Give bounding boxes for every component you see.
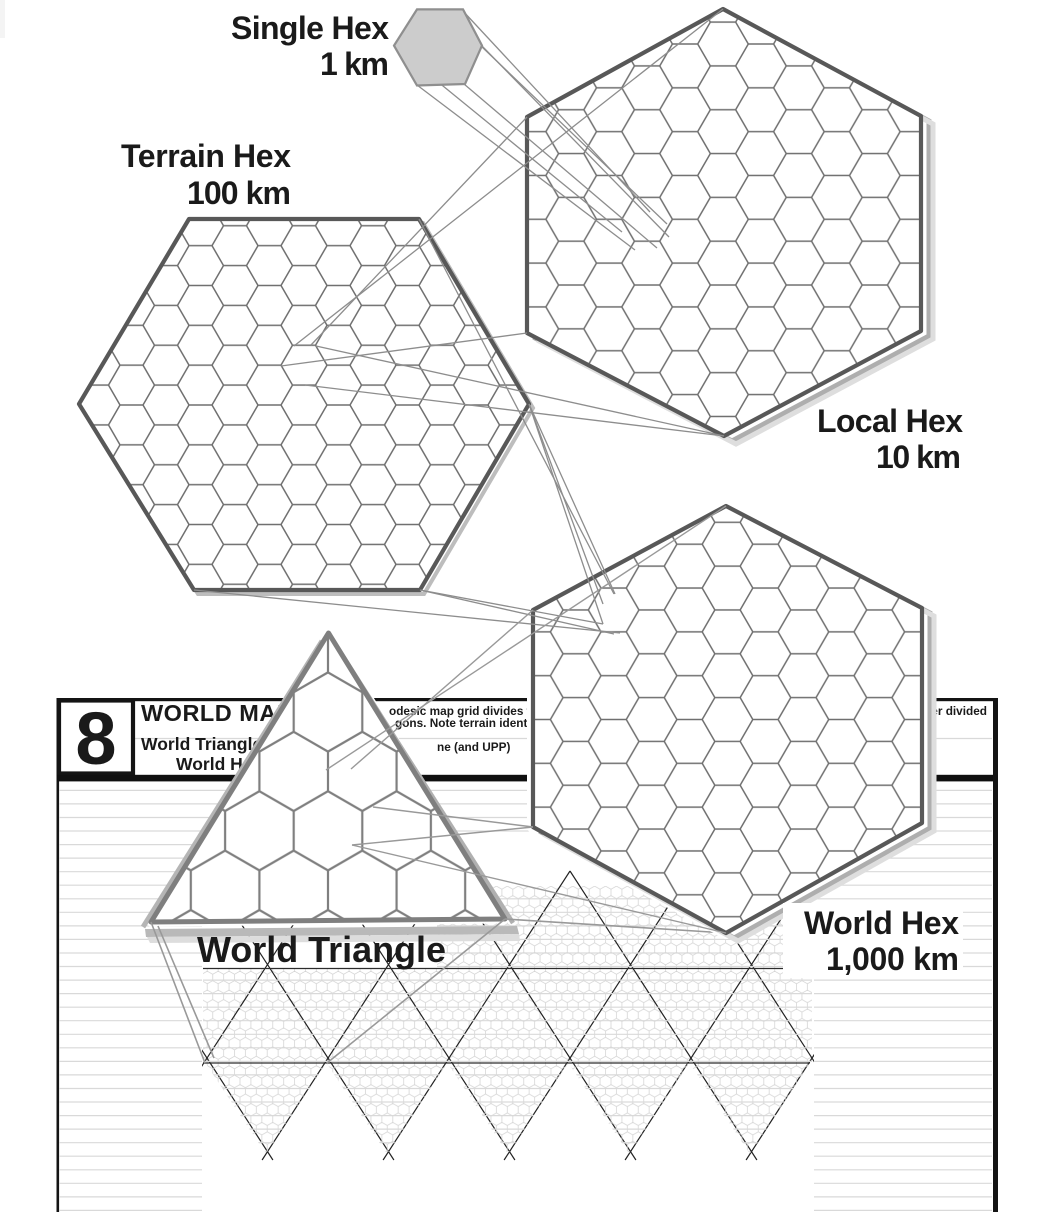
svg-text:Terrain Hex: Terrain Hex (121, 138, 291, 174)
svg-text:1 km: 1 km (320, 46, 389, 82)
svg-text:100 km: 100 km (187, 175, 291, 211)
svg-text:1,000 km: 1,000 km (826, 941, 959, 977)
svg-text:Single Hex: Single Hex (231, 10, 389, 46)
svg-text:ne (and UPP): ne (and UPP) (437, 740, 510, 754)
svg-text:8: 8 (75, 697, 116, 780)
svg-text:Local Hex: Local Hex (817, 403, 963, 439)
svg-text:gons. Note terrain identific: gons. Note terrain identific (395, 716, 545, 730)
svg-text:10 km: 10 km (876, 439, 961, 475)
svg-text:World Triangle: World Triangle (197, 929, 446, 970)
svg-text:er divided: er divided (931, 704, 987, 718)
svg-text:World Hex: World Hex (804, 905, 959, 941)
